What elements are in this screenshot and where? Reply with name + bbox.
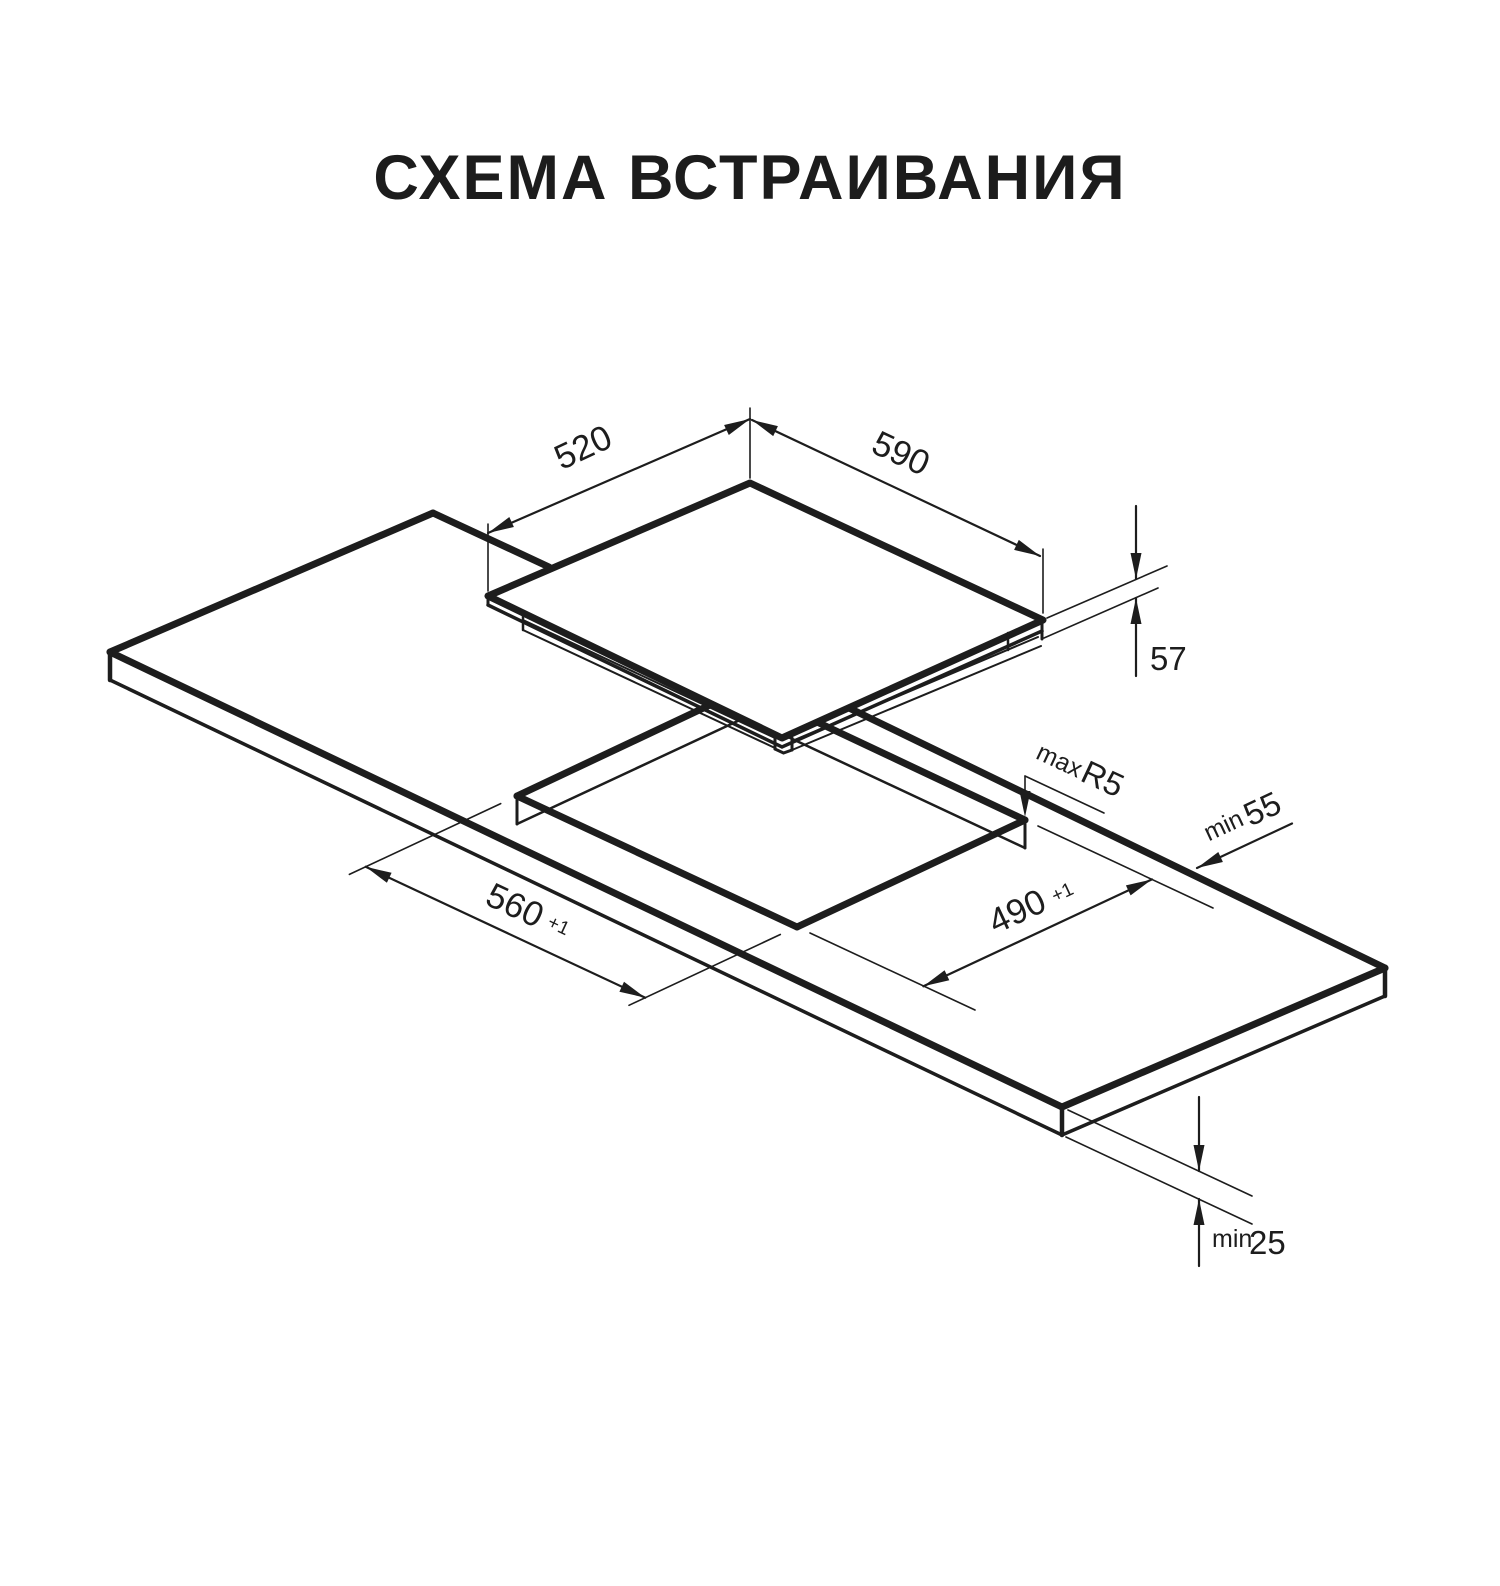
dim-490-tolerance: +1 (1048, 879, 1077, 907)
min-25-value-label: 25 (1249, 1224, 1286, 1261)
dim-520-label: 520 (548, 418, 617, 478)
page-title: СХЕМА ВСТРАИВАНИЯ (373, 143, 1126, 213)
worktop-cutout (517, 704, 1025, 927)
installation-diagram: СХЕМА ВСТРАИВАНИЯ (0, 0, 1500, 1586)
dim-min-25: min 25 (1066, 1097, 1286, 1266)
min-55-prefix-label: min (1199, 805, 1247, 847)
dim-57: 57 (1044, 506, 1187, 677)
hob-glass-top (488, 483, 1043, 738)
dim-min-55: min 55 (1038, 784, 1292, 908)
dim-560: 560 +1 (349, 804, 780, 1006)
dim-560-tolerance: +1 (544, 912, 573, 940)
dim-490-label: 490 (982, 882, 1051, 942)
min-25-prefix-label: min (1212, 1225, 1252, 1253)
max-r5-prefix-label: max (1032, 738, 1087, 784)
page: СХЕМА ВСТРАИВАНИЯ (0, 0, 1500, 1586)
dim-max-r5: max R5 (1020, 738, 1130, 817)
dim-590-label: 590 (866, 424, 935, 484)
dim-57-label: 57 (1150, 640, 1187, 677)
hob (488, 483, 1043, 753)
